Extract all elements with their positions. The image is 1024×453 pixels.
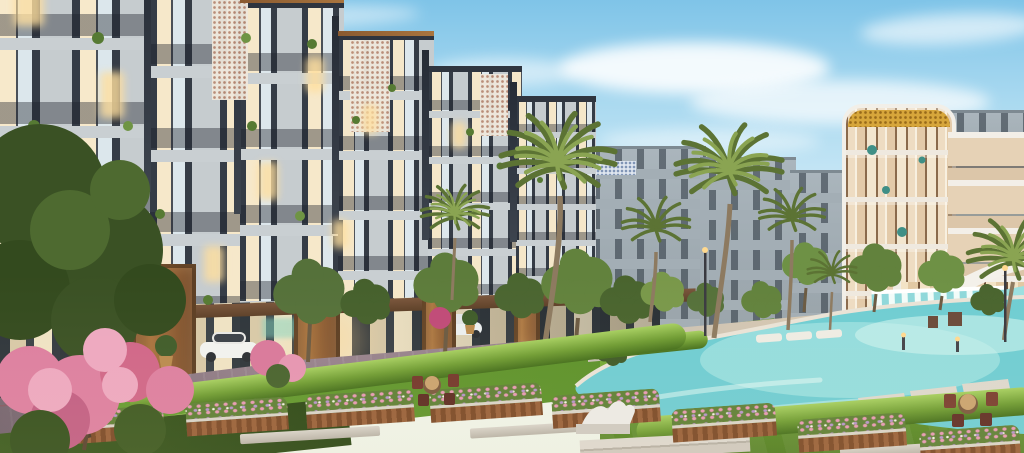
residential-community-rendering [0,0,1024,453]
pink-flowering-shrub [0,328,194,453]
foreground-vegetation [0,0,1024,453]
small-pink-shrub [250,307,451,388]
